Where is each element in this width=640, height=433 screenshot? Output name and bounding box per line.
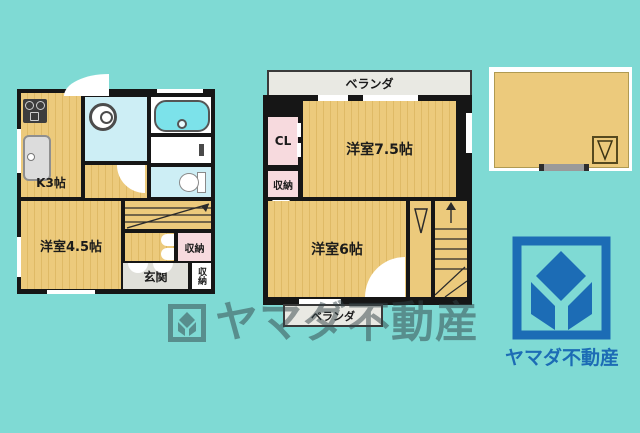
window-mark [157,89,203,93]
entrance: 玄関 [123,263,188,289]
washing-machine-icon [89,103,117,131]
western-room-6: 洋室6帖 [268,201,406,297]
floorplan-image: K3帖 [0,0,640,433]
window-mark [47,290,95,294]
toilet-room [151,167,211,197]
western-room-6-label: 洋室6帖 [311,239,363,259]
closet-cl-label: CL [275,134,291,148]
western-room-4-5: 洋室4.5帖 [21,201,121,289]
window-mark [539,164,589,171]
watermark: ヤマダ不動産 [167,301,479,345]
door-swing-icon [365,257,405,297]
floor1-plan: K3帖 [17,89,215,294]
floor2-plan: CL 収納 洋室7.5帖 洋室6帖 [263,95,472,305]
washroom [85,97,147,161]
closet-hanger-icon [412,206,430,236]
veranda-top: ベランダ [267,70,472,97]
veranda-top-label: ベランダ [345,75,393,92]
yamada-logo-text: ヤマダ不動産 [500,343,624,370]
door-swing-icon [117,165,145,193]
window-mark [363,95,418,101]
rooftop-room [494,72,629,168]
door-swing-icon [161,248,174,260]
kitchen-room: K3帖 [21,93,81,197]
hallway [85,165,147,198]
stairs-icon [125,201,211,229]
rooftop-closet [592,136,618,164]
watermark-text: ヤマダ不動産 [215,301,479,345]
window-mark [318,95,348,101]
closet-hanger-icon [594,138,616,162]
watermark-logo-icon [167,303,207,343]
storage-hall: 収納 [178,233,211,261]
stairs-1f [125,201,211,229]
bathtub-icon [154,100,210,132]
window-mark [466,113,472,153]
door-swing-icon [161,234,174,246]
closet-2f [410,201,431,297]
stove-icon [23,99,47,123]
faucet-icon [199,144,204,156]
door-mark [297,143,301,157]
closet-cl: CL [268,117,298,165]
door-mark [297,123,301,137]
storage-hall-label: 収納 [185,240,205,255]
stairs-2f [435,201,467,297]
bathroom [151,97,211,133]
western-room-7-5: 洋室7.5帖 [303,101,456,197]
storage-2f: 収納 [268,171,298,197]
washstand-room [151,137,211,163]
yamada-logo-icon [512,236,611,340]
hallway-entrance [125,233,174,261]
stairs-icon [435,201,467,297]
western-room-4-5-label: 洋室4.5帖 [40,236,102,255]
window-mark [17,237,21,277]
rooftop-plan [489,67,632,171]
kitchen-label: K3帖 [21,174,81,191]
western-room-7-5-label: 洋室7.5帖 [346,139,413,159]
storage-2f-label: 収納 [273,177,293,192]
storage-entrance-label: 収納 [195,267,208,285]
door-swing-icon [64,74,109,96]
storage-entrance: 収納 [192,263,211,289]
window-mark [17,129,21,173]
toilet-bowl-icon [179,173,199,192]
